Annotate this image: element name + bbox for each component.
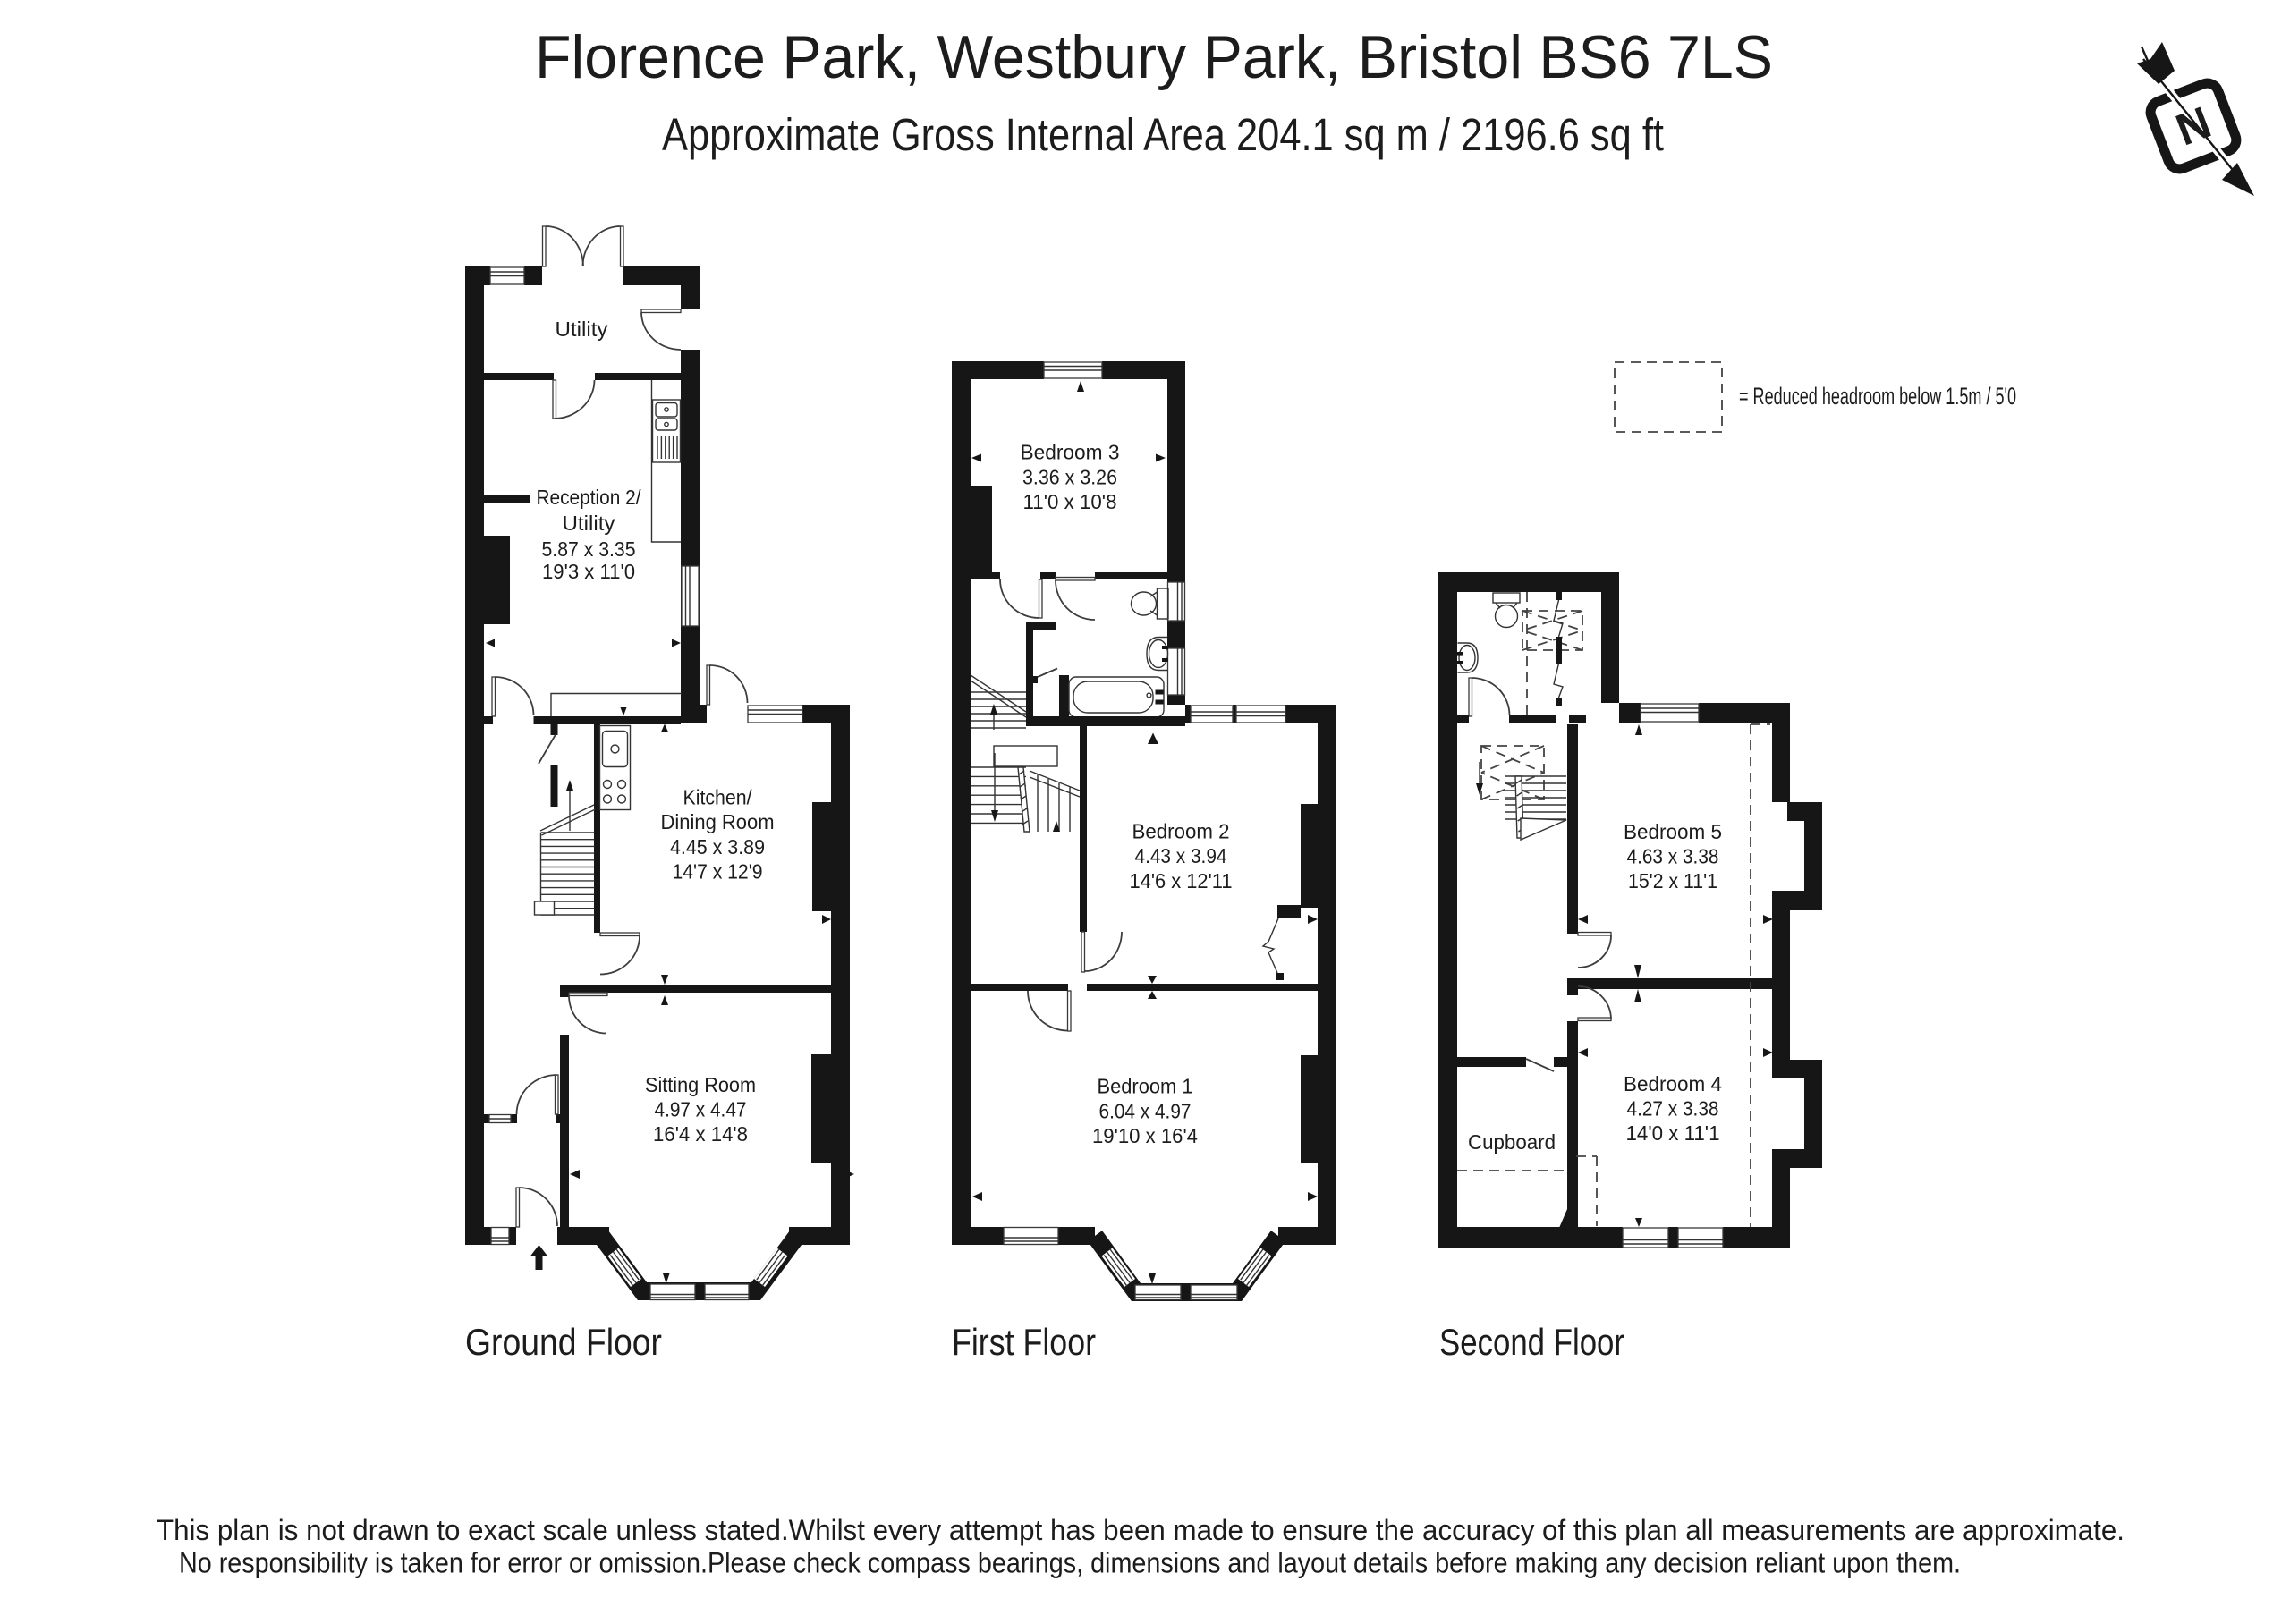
svg-text:Sitting Room: Sitting Room [645, 1073, 756, 1096]
svg-text:Dining Room: Dining Room [661, 810, 775, 833]
svg-text:16'4 x 14'8: 16'4 x 14'8 [653, 1122, 748, 1146]
svg-text:This plan is not drawn to exac: This plan is not drawn to exact scale un… [157, 1514, 2125, 1546]
svg-text:4.63 x 3.38: 4.63 x 3.38 [1627, 845, 1719, 868]
svg-text:No responsibility is taken for: No responsibility is taken for error or … [179, 1547, 1961, 1579]
svg-text:Second Floor: Second Floor [1439, 1321, 1624, 1363]
svg-text:Kitchen/: Kitchen/ [683, 786, 753, 809]
svg-text:5.87 x 3.35: 5.87 x 3.35 [542, 537, 636, 561]
svg-text:19'10 x 16'4: 19'10 x 16'4 [1092, 1124, 1198, 1147]
svg-text:14'6 x 12'11: 14'6 x 12'11 [1130, 869, 1233, 892]
svg-text:6.04 x 4.97: 6.04 x 4.97 [1099, 1099, 1192, 1122]
svg-text:Florence Park, Westbury Park,: Florence Park, Westbury Park, Bristol BS… [535, 23, 1773, 91]
svg-text:14'7 x 12'9: 14'7 x 12'9 [673, 859, 763, 883]
svg-text:11'0 x 10'8: 11'0 x 10'8 [1023, 490, 1117, 513]
svg-text:Bedroom 1: Bedroom 1 [1098, 1075, 1193, 1098]
svg-text:3.36 x 3.26: 3.36 x 3.26 [1022, 465, 1117, 488]
svg-text:Bedroom 3: Bedroom 3 [1021, 441, 1120, 464]
svg-text:4.45 x 3.89: 4.45 x 3.89 [670, 835, 765, 859]
svg-text:Bedroom 2: Bedroom 2 [1132, 820, 1230, 843]
svg-text:4.27 x 3.38: 4.27 x 3.38 [1627, 1097, 1719, 1121]
svg-text:19'3 x 11'0: 19'3 x 11'0 [542, 560, 635, 583]
svg-text:Bedroom 5: Bedroom 5 [1624, 820, 1722, 843]
svg-text:14'0 x 11'1: 14'0 x 11'1 [1626, 1121, 1720, 1145]
svg-text:Utility: Utility [556, 317, 609, 341]
svg-text:Utility: Utility [563, 512, 616, 535]
svg-text:= Reduced headroom below 1.5m: = Reduced headroom below 1.5m / 5'0 [1739, 383, 2016, 410]
svg-text:Approximate Gross Internal Are: Approximate Gross Internal Area 204.1 sq… [662, 109, 1664, 160]
svg-text:Bedroom 4: Bedroom 4 [1624, 1072, 1722, 1095]
svg-text:Cupboard: Cupboard [1468, 1130, 1556, 1154]
svg-text:15'2 x 11'1: 15'2 x 11'1 [1628, 869, 1717, 892]
svg-text:Reception 2/: Reception 2/ [537, 486, 642, 509]
svg-text:First Floor: First Floor [952, 1321, 1096, 1363]
svg-text:4.97 x 4.47: 4.97 x 4.47 [655, 1098, 747, 1121]
svg-text:4.43 x 3.94: 4.43 x 3.94 [1135, 844, 1227, 867]
svg-text:Ground Floor: Ground Floor [465, 1321, 662, 1363]
